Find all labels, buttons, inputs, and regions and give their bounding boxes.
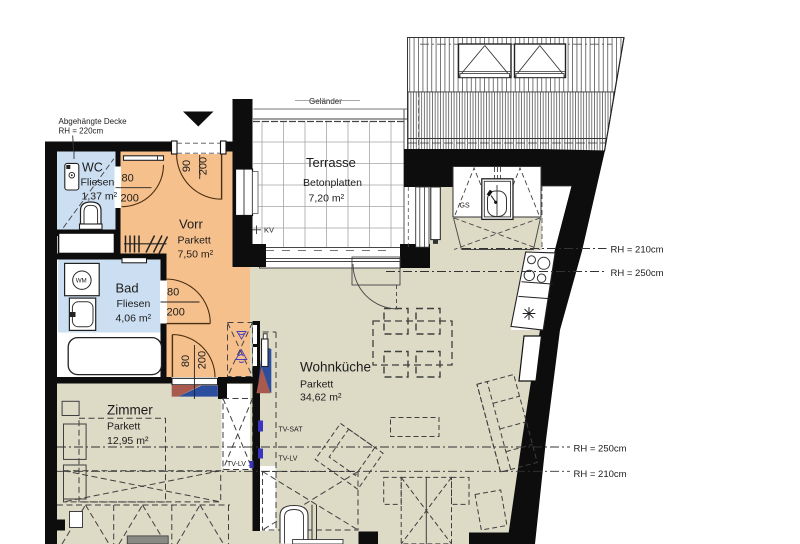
svg-text:80: 80: [167, 287, 179, 299]
svg-text:7,50 m²: 7,50 m²: [178, 249, 214, 261]
svg-text:200: 200: [121, 193, 139, 205]
svg-text:Terrasse: Terrasse: [306, 155, 356, 170]
svg-text:Betonplatten: Betonplatten: [303, 177, 362, 189]
svg-text:WM: WM: [76, 278, 87, 285]
svg-text:GS: GS: [460, 203, 470, 210]
svg-text:WC: WC: [82, 161, 103, 175]
svg-text:Fliesen: Fliesen: [81, 177, 115, 189]
svg-text:80: 80: [180, 355, 192, 367]
svg-text:RH = 210cm: RH = 210cm: [574, 469, 627, 480]
svg-text:Parkett: Parkett: [300, 379, 333, 391]
svg-text:12,95 m²: 12,95 m²: [107, 435, 149, 447]
svg-text:Zimmer: Zimmer: [107, 403, 153, 418]
svg-text:Parkett: Parkett: [178, 235, 211, 247]
svg-text:RH = 220cm: RH = 220cm: [59, 127, 104, 136]
svg-text:200: 200: [167, 307, 185, 319]
svg-text:TV-LV: TV-LV: [279, 456, 298, 463]
svg-text:200: 200: [198, 157, 210, 175]
svg-text:RH = 250cm: RH = 250cm: [574, 444, 627, 455]
svg-text:TV-LV 1: TV-LV 1: [227, 461, 252, 468]
svg-text:Vorr: Vorr: [179, 217, 204, 232]
svg-text:RH = 210cm: RH = 210cm: [611, 245, 664, 256]
svg-text:80: 80: [122, 173, 134, 185]
svg-text:TV-SAT: TV-SAT: [279, 427, 304, 434]
svg-text:1,37 m²: 1,37 m²: [82, 191, 118, 203]
svg-text:RH = 250cm: RH = 250cm: [611, 268, 664, 279]
svg-text:4,06 m²: 4,06 m²: [116, 313, 152, 325]
svg-text:Fliesen: Fliesen: [117, 298, 151, 310]
svg-text:200: 200: [197, 351, 209, 369]
svg-text:90: 90: [181, 160, 193, 172]
svg-text:Abgehängte Decke: Abgehängte Decke: [59, 117, 128, 126]
svg-text:Bad: Bad: [116, 281, 139, 296]
svg-text:7,20 m²: 7,20 m²: [309, 193, 345, 205]
svg-text:Parkett: Parkett: [107, 421, 140, 433]
svg-text:KV: KV: [264, 226, 274, 235]
svg-text:Geländer: Geländer: [309, 97, 342, 106]
svg-text:34,62 m²: 34,62 m²: [300, 392, 342, 404]
svg-text:Wohnküche: Wohnküche: [300, 360, 371, 375]
